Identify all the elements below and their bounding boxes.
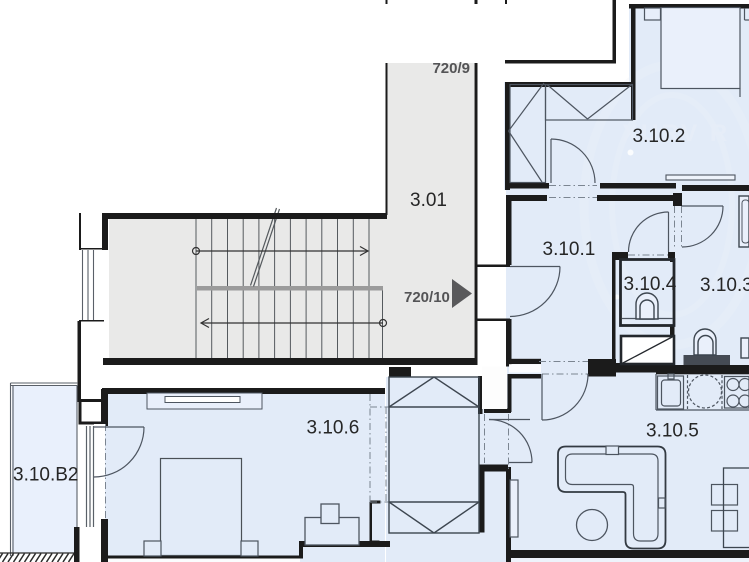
svg-text:3.10.1: 3.10.1 bbox=[543, 239, 596, 260]
svg-text:3.10.5: 3.10.5 bbox=[646, 421, 699, 442]
svg-text:3.10.3: 3.10.3 bbox=[700, 275, 749, 296]
svg-text:3.10.2: 3.10.2 bbox=[633, 126, 686, 147]
svg-text:3.10.4: 3.10.4 bbox=[624, 274, 677, 295]
svg-text:3.10.B2: 3.10.B2 bbox=[13, 465, 79, 486]
svg-text:720/9: 720/9 bbox=[432, 60, 470, 77]
svg-text:3.10.6: 3.10.6 bbox=[307, 418, 360, 439]
svg-text:720/10: 720/10 bbox=[404, 289, 450, 306]
svg-text:3.01: 3.01 bbox=[410, 190, 447, 211]
